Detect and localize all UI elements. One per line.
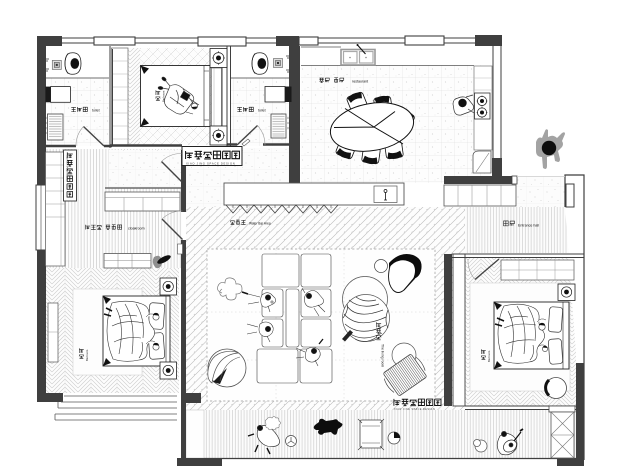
svg-text:XIAO JING SPACE DESIGN: XIAO JING SPACE DESIGN xyxy=(66,155,69,181)
svg-text:XIAO JING SPACE DESIGN: XIAO JING SPACE DESIGN xyxy=(186,162,235,166)
svg-text:toilet: toilet xyxy=(258,109,266,113)
svg-text:Water Bar Area: Water Bar Area xyxy=(249,222,271,226)
svg-text:Entrance hall: Entrance hall xyxy=(518,224,539,228)
svg-text:Bed room: Bed room xyxy=(85,350,89,361)
svg-text:toilet: toilet xyxy=(92,109,100,113)
svg-text:Bed room: Bed room xyxy=(162,91,166,102)
svg-text:Bed room: Bed room xyxy=(487,351,491,362)
svg-text:The living room: The living room xyxy=(381,344,385,367)
svg-text:cloakroom: cloakroom xyxy=(128,227,145,231)
svg-text:XIAO JING SPACE DESIGN: XIAO JING SPACE DESIGN xyxy=(394,408,435,411)
svg-text:restaurant: restaurant xyxy=(352,80,368,84)
